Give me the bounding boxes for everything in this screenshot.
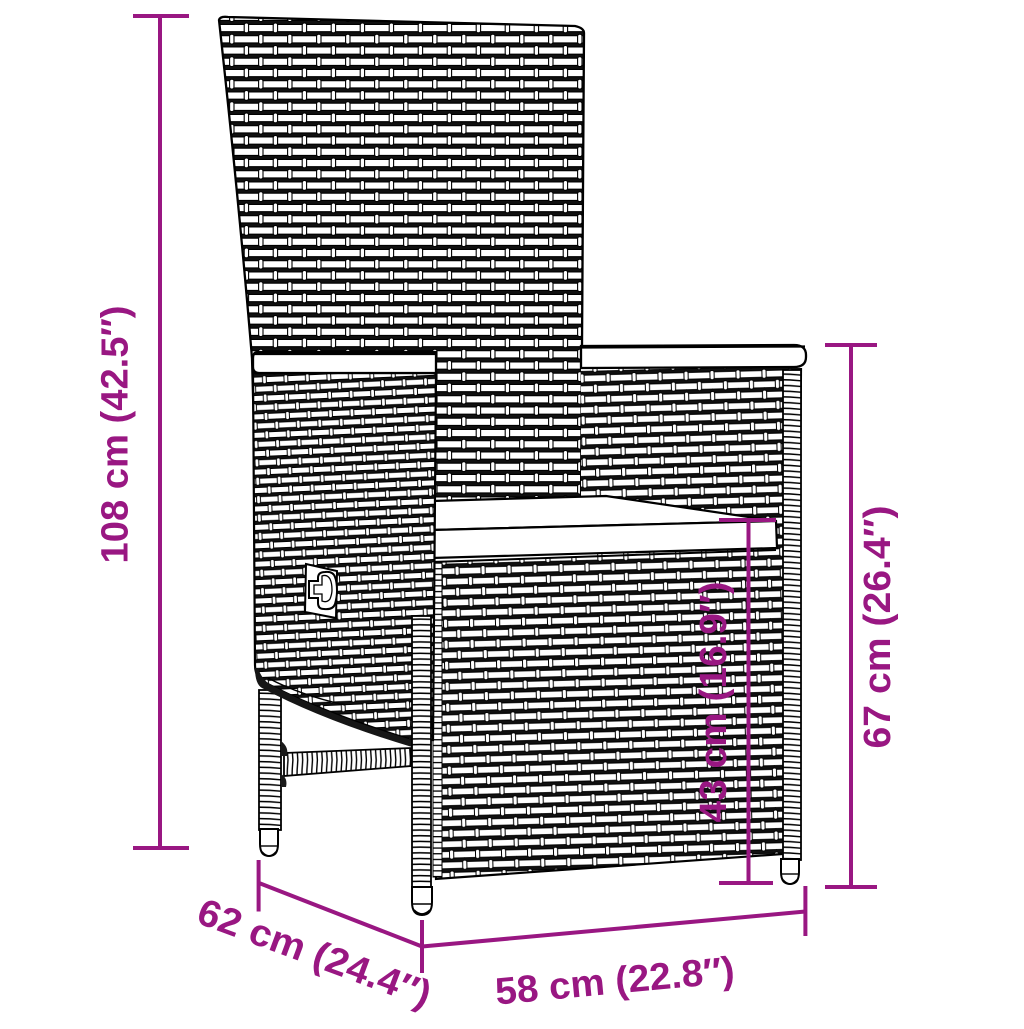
svg-text:43 cm (16.9″): 43 cm (16.9″) <box>693 582 735 823</box>
svg-text:67 cm (26.4″): 67 cm (26.4″) <box>857 506 899 749</box>
svg-text:108 cm (42.5″): 108 cm (42.5″) <box>95 306 137 564</box>
